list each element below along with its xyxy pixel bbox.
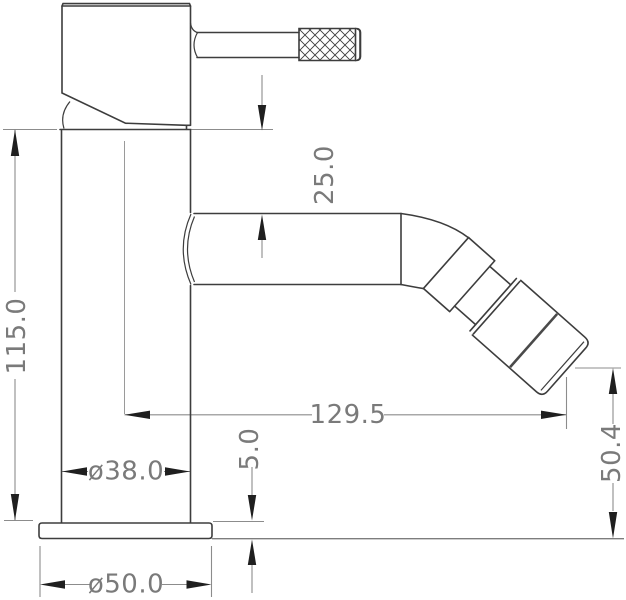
arrowhead-up: [609, 368, 617, 394]
arrowhead-left: [125, 411, 151, 419]
bidet-tap-dimension-drawing: 115.0 25.0 129.5 ø38.0: [0, 0, 626, 600]
arrowhead-down: [248, 495, 256, 521]
washer-lines: [470, 279, 520, 334]
arrowhead-right: [541, 411, 567, 419]
dim-label-base-plate-height: 5.0: [235, 428, 265, 471]
aerator-seam-line: [510, 314, 557, 367]
technical-drawing-page: 115.0 25.0 129.5 ø38.0: [0, 0, 626, 600]
joint-ring-a: [423, 238, 468, 289]
bend-inner-curve: [401, 285, 424, 289]
dim-base-diameter: ø50.0: [40, 546, 212, 600]
dim-body-diameter: ø38.0: [62, 457, 190, 487]
spout-end-assembly: [422, 236, 591, 397]
dimension-layer: 115.0 25.0 129.5 ø38.0: [2, 75, 626, 600]
bend-outer-curve: [401, 214, 469, 238]
dim-label-body-diameter: ø38.0: [88, 457, 164, 487]
dim-label-outlet-height: 50.4: [597, 423, 626, 483]
arrowhead-up: [11, 130, 19, 157]
arrowhead-left: [40, 580, 65, 588]
arrowhead-up: [258, 215, 266, 241]
mixer-head: [62, 4, 198, 130]
dim-label-spout-reach: 129.5: [310, 400, 387, 430]
arrowhead-up: [248, 540, 256, 566]
knurl-pattern: [299, 29, 356, 61]
arrowhead-right: [187, 580, 212, 588]
arrowhead-right: [165, 467, 190, 475]
dim-spout-top-offset: 25.0: [258, 75, 340, 258]
arrowhead-down: [11, 494, 19, 521]
dim-label-spout-top-offset: 25.0: [310, 145, 340, 205]
arrowhead-down: [609, 512, 617, 539]
aerator: [472, 280, 590, 397]
dim-label-base-diameter: ø50.0: [88, 570, 164, 600]
chin-fillet-arc: [63, 102, 70, 129]
spout: [194, 214, 591, 398]
lever-root-arc: [194, 33, 198, 58]
lever-fillet-arc: [191, 23, 199, 33]
outlet-face-line: [541, 342, 584, 391]
handle-lever: [194, 29, 361, 61]
base-plate: [39, 523, 212, 539]
dim-body-height: 115.0: [2, 130, 33, 521]
arrowhead-down: [258, 105, 266, 131]
dim-base-plate-height: 5.0: [213, 428, 265, 593]
dim-label-body-height: 115.0: [2, 298, 32, 375]
knurled-grip: [299, 29, 361, 61]
dim-outlet-height: 50.4: [575, 368, 626, 539]
arrowhead-left: [62, 467, 87, 475]
spout-body-junction-arcs: [183, 214, 194, 285]
